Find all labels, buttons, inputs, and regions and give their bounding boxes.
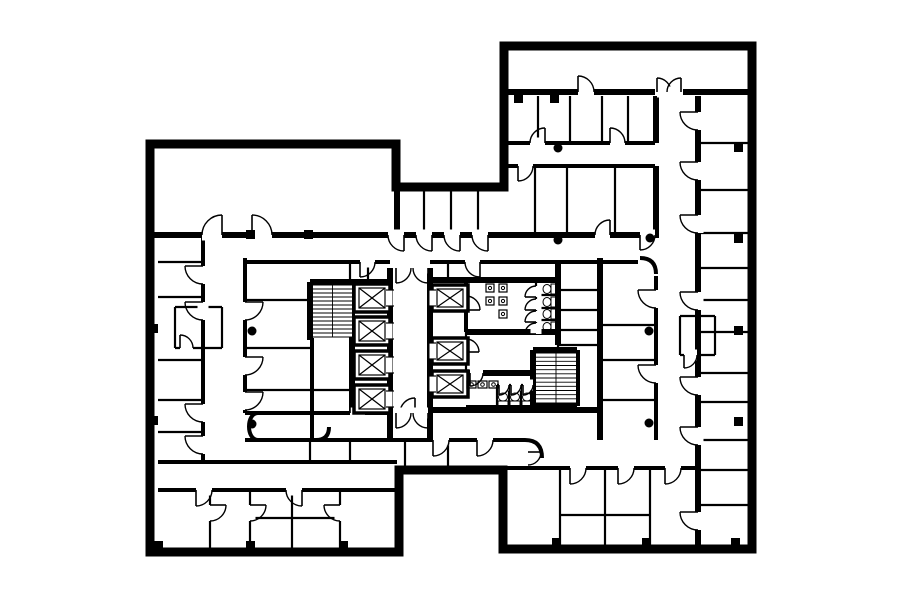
door-swing [667, 78, 681, 98]
floor-plan-drawing [0, 0, 900, 604]
door-swing [388, 230, 404, 252]
elevator-banks [354, 284, 468, 413]
elevator-shaft-west [354, 351, 394, 379]
door-swing [680, 162, 704, 180]
door-swing [444, 230, 460, 252]
door-swing [396, 263, 411, 284]
door-swing [240, 357, 264, 375]
square-column [154, 541, 163, 550]
staircase [313, 285, 352, 337]
square-column [304, 230, 313, 239]
door-swing [396, 408, 411, 429]
square-column [246, 541, 255, 550]
urinal-icon [499, 310, 507, 318]
round-column [645, 419, 654, 428]
round-column [554, 144, 563, 153]
door-swing [525, 286, 542, 297]
square-column [734, 326, 743, 335]
door-swing [240, 392, 264, 410]
door-swing [185, 266, 209, 284]
door-swing [525, 311, 542, 322]
door-swing [570, 463, 586, 485]
round-column [248, 420, 257, 429]
elevator-shaft-east [428, 338, 468, 364]
door-swing [610, 128, 625, 149]
door-swing [416, 230, 432, 252]
door-swing [477, 435, 493, 457]
door-swing [638, 290, 662, 308]
square-column [514, 94, 523, 103]
door-swing [433, 435, 449, 457]
urinal-icon [486, 284, 494, 292]
square-column [339, 541, 348, 550]
elevator-shaft-west [354, 284, 394, 312]
square-column [552, 538, 561, 547]
structural-columns [149, 94, 743, 550]
round-column [645, 327, 654, 336]
toilet-icon [543, 309, 556, 319]
door-swing [413, 263, 428, 284]
square-column [149, 416, 158, 425]
door-swing [595, 220, 610, 241]
square-column [550, 94, 559, 103]
floor-plan-page [0, 0, 900, 604]
staircase [536, 353, 576, 403]
corridor-corner [316, 427, 329, 440]
door-swing [472, 230, 488, 252]
elevator-shaft-east [428, 371, 468, 397]
door-swing [680, 215, 704, 233]
elevator-shaft-east [428, 285, 468, 311]
square-column [149, 324, 158, 333]
elevator-shaft-west [354, 385, 394, 413]
door-swing [638, 365, 662, 383]
door-swing [523, 452, 542, 465]
door-swing [180, 335, 193, 354]
door-swing [680, 292, 704, 310]
door-swing [185, 302, 209, 320]
round-column [554, 236, 563, 245]
square-column [734, 417, 743, 426]
door-swing [665, 463, 681, 485]
corridor-corner [640, 258, 656, 274]
square-column [734, 234, 743, 243]
square-column [734, 143, 743, 152]
door-swing [680, 512, 704, 530]
elevator-shaft-west [354, 317, 394, 345]
door-swing [578, 76, 594, 98]
door-swing [680, 377, 704, 395]
square-column [731, 538, 740, 547]
door-swing [525, 299, 542, 310]
square-column [642, 538, 651, 547]
door-swing [202, 215, 222, 241]
round-column [646, 234, 655, 243]
door-swing [185, 436, 209, 454]
door-swing [465, 257, 480, 278]
door-swing [185, 404, 209, 422]
door-swing [240, 302, 264, 320]
toilet-icon [543, 284, 556, 294]
door-swing [205, 505, 227, 521]
urinal-icon [499, 297, 507, 305]
door-swing [680, 112, 704, 130]
door-swing [618, 463, 634, 485]
door-swing [413, 408, 428, 429]
urinal-icon [499, 284, 507, 292]
square-column [246, 230, 255, 239]
door-swing [518, 161, 533, 182]
toilet-icon [543, 297, 556, 307]
door-swing [680, 427, 704, 445]
round-column [248, 327, 257, 336]
door-swing [286, 485, 302, 507]
urinal-icon [486, 297, 494, 305]
